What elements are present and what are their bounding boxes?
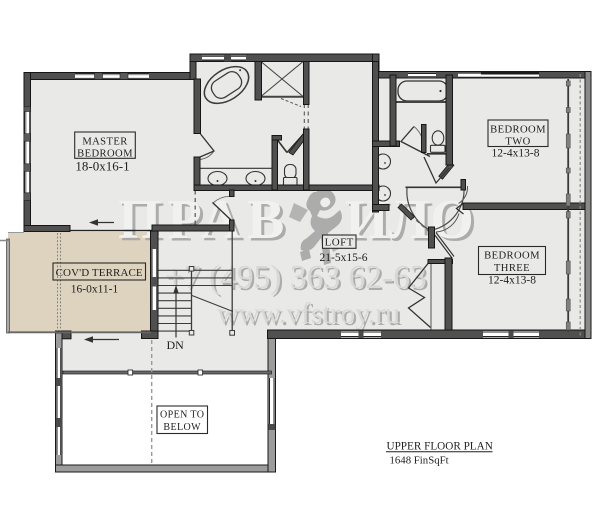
svg-text:BEDROOM: BEDROOM bbox=[490, 124, 546, 135]
svg-text:BEDROOM: BEDROOM bbox=[484, 251, 540, 262]
svg-text:12-4x13-8: 12-4x13-8 bbox=[492, 147, 540, 159]
svg-text:1648 FinSqFt: 1648 FinSqFt bbox=[390, 455, 449, 467]
svg-text:12-4x13-8: 12-4x13-8 bbox=[488, 275, 536, 287]
svg-text:OPEN TO: OPEN TO bbox=[160, 410, 204, 421]
svg-text:ИЛО: ИЛО bbox=[345, 189, 474, 251]
svg-text:THREE: THREE bbox=[494, 263, 530, 274]
svg-text:www.vfstroy.ru: www.vfstroy.ru bbox=[217, 298, 400, 330]
svg-text:MASTER: MASTER bbox=[82, 137, 128, 148]
svg-text:16-0x11-1: 16-0x11-1 bbox=[71, 284, 119, 296]
svg-text:COV'D TERRACE: COV'D TERRACE bbox=[56, 267, 143, 279]
svg-text:18-0x16-1: 18-0x16-1 bbox=[75, 159, 129, 174]
svg-text:21-5x15-6: 21-5x15-6 bbox=[320, 252, 368, 264]
svg-text:ПРАВ: ПРАВ bbox=[118, 189, 290, 251]
svg-text:UPPER FLOOR PLAN: UPPER FLOOR PLAN bbox=[387, 441, 493, 453]
svg-text:DN: DN bbox=[167, 338, 185, 352]
svg-text:TWO: TWO bbox=[505, 136, 530, 147]
svg-text:BELOW: BELOW bbox=[163, 422, 201, 433]
svg-text:LOFT: LOFT bbox=[325, 237, 354, 249]
